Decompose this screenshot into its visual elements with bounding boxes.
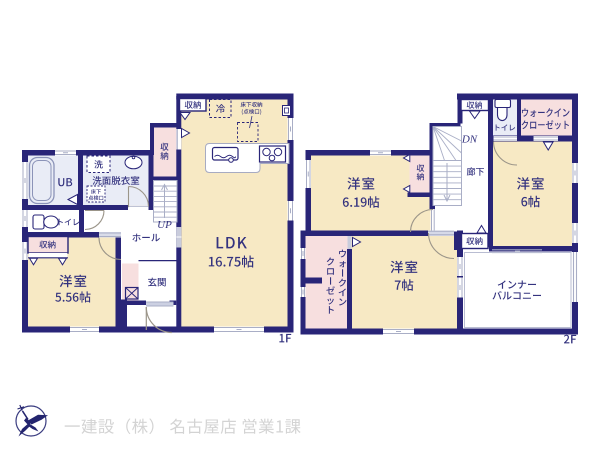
svg-text:DN: DN	[461, 134, 478, 146]
svg-text:UP: UP	[157, 219, 172, 231]
